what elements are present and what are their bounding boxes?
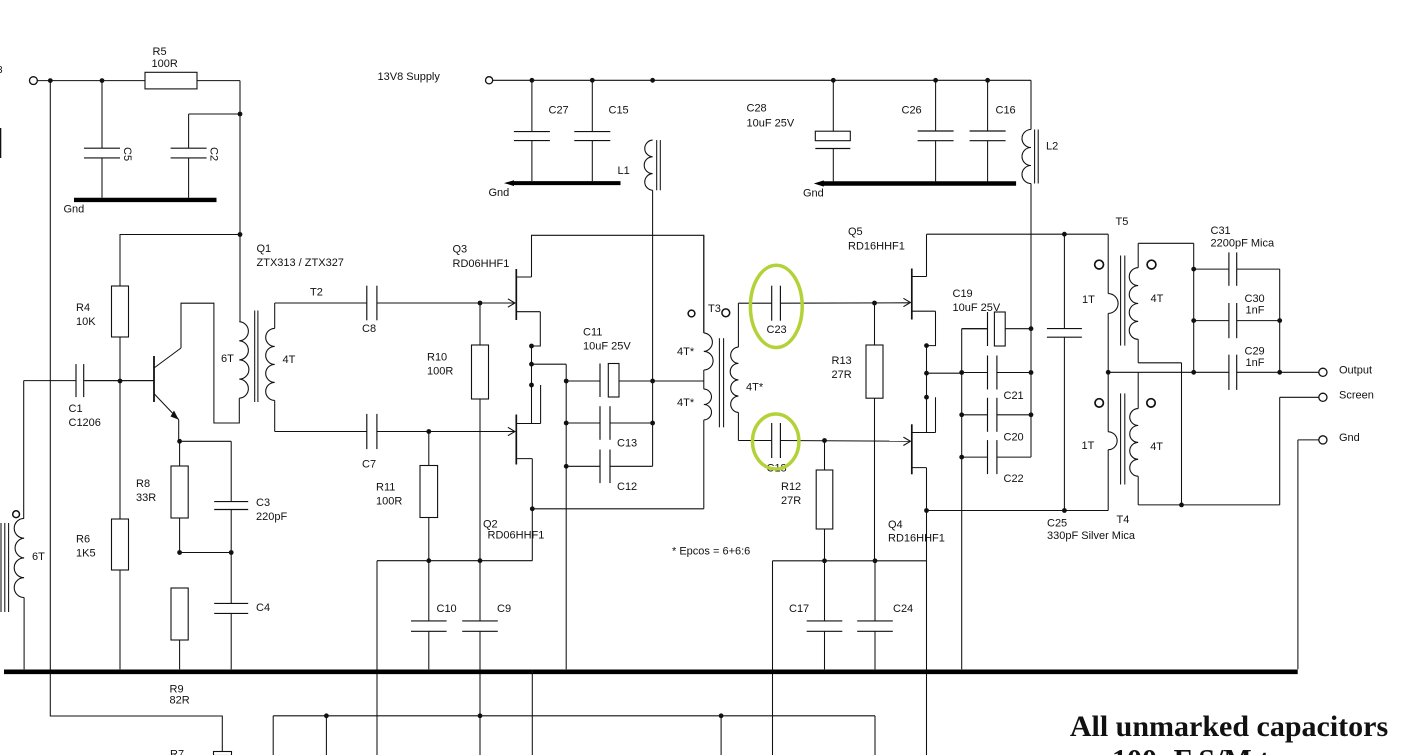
- svg-text:R7: R7: [170, 749, 184, 755]
- svg-text:Gnd: Gnd: [64, 204, 85, 216]
- svg-text:4T: 4T: [283, 354, 296, 366]
- svg-text:Gnd: Gnd: [803, 188, 824, 200]
- svg-text:* Epcos = 6+6:6: * Epcos = 6+6:6: [672, 546, 750, 558]
- svg-text:Output: Output: [1339, 364, 1372, 376]
- svg-text:27R: 27R: [781, 495, 801, 507]
- svg-text:R12: R12: [781, 481, 801, 493]
- svg-text:R8: R8: [136, 478, 150, 490]
- svg-text:C28: C28: [747, 103, 767, 115]
- svg-text:C22: C22: [1004, 473, 1024, 485]
- svg-text:C15: C15: [609, 105, 629, 117]
- svg-text:ZTX313 / ZTX327: ZTX313 / ZTX327: [257, 257, 344, 269]
- svg-text:R11: R11: [376, 482, 395, 494]
- svg-text:C2: C2: [208, 147, 220, 161]
- svg-text:4T*: 4T*: [677, 397, 695, 409]
- svg-text:C25: C25: [1047, 518, 1067, 530]
- svg-text:10uF 25V: 10uF 25V: [953, 302, 1001, 314]
- svg-text:R4: R4: [76, 302, 90, 314]
- svg-text:220pF: 220pF: [256, 511, 287, 523]
- svg-text:100R: 100R: [152, 58, 178, 70]
- svg-text:1T: 1T: [1082, 294, 1095, 306]
- svg-text:T3: T3: [708, 303, 721, 315]
- svg-text:C20: C20: [1004, 432, 1024, 444]
- svg-text:C26: C26: [902, 105, 922, 117]
- svg-text:6T: 6T: [221, 353, 234, 365]
- svg-text:100R: 100R: [427, 366, 453, 378]
- svg-text:Gnd: Gnd: [489, 187, 510, 199]
- svg-text:Screen: Screen: [1339, 389, 1374, 401]
- svg-text:All unmarked capacitors: All unmarked capacitors: [1070, 710, 1388, 743]
- svg-text:Q4: Q4: [888, 519, 903, 531]
- svg-text:10uF 25V: 10uF 25V: [747, 118, 795, 130]
- svg-text:C11: C11: [583, 327, 602, 339]
- svg-text:4T: 4T: [1151, 293, 1164, 305]
- svg-text:2200pF Mica: 2200pF Mica: [1211, 238, 1275, 250]
- svg-text:C27: C27: [549, 105, 569, 117]
- svg-text:330pF Silver Mica: 330pF Silver Mica: [1047, 530, 1136, 542]
- svg-text:6T: 6T: [32, 551, 45, 563]
- svg-text:C16: C16: [996, 105, 1016, 117]
- svg-text:C4: C4: [256, 602, 270, 614]
- svg-text:3: 3: [0, 65, 3, 76]
- svg-text:RD06HHF1: RD06HHF1: [453, 258, 510, 270]
- svg-text:Q3: Q3: [453, 244, 468, 256]
- svg-text:C1206: C1206: [69, 417, 101, 429]
- svg-text:T4: T4: [1117, 514, 1130, 526]
- svg-text:1K5: 1K5: [76, 548, 96, 560]
- svg-text:Gnd: Gnd: [1339, 432, 1360, 444]
- svg-text:RD06HHF1: RD06HHF1: [488, 530, 545, 542]
- svg-text:C5: C5: [121, 147, 133, 161]
- svg-text:27R: 27R: [832, 369, 852, 381]
- svg-text:C29: C29: [1245, 346, 1265, 358]
- svg-text:C21: C21: [1004, 390, 1024, 402]
- svg-text:4T: 4T: [1150, 441, 1163, 453]
- svg-text:4T*: 4T*: [746, 382, 764, 394]
- svg-text:33R: 33R: [136, 492, 156, 504]
- svg-text:Q5: Q5: [848, 226, 863, 238]
- svg-text:Q1: Q1: [257, 243, 272, 255]
- svg-text:R5: R5: [153, 46, 167, 58]
- svg-text:1nF: 1nF: [1246, 357, 1265, 369]
- svg-text:T2: T2: [310, 287, 323, 299]
- svg-text:1T: 1T: [1082, 440, 1095, 452]
- svg-text:C13: C13: [617, 438, 637, 450]
- svg-text:T5: T5: [1116, 216, 1129, 228]
- svg-text:4T*: 4T*: [677, 346, 695, 358]
- svg-text:R10: R10: [427, 352, 447, 364]
- svg-text:82R: 82R: [170, 694, 190, 706]
- svg-text:100pF S/M type: 100pF S/M type: [1112, 744, 1314, 755]
- svg-text:C1: C1: [69, 403, 83, 415]
- svg-text:10K: 10K: [76, 316, 96, 328]
- svg-text:C8: C8: [362, 323, 376, 335]
- svg-text:RD16HHF1: RD16HHF1: [888, 533, 945, 545]
- svg-text:R6: R6: [76, 534, 90, 546]
- svg-text:L2: L2: [1046, 141, 1058, 153]
- svg-text:RD16HHF1: RD16HHF1: [848, 241, 905, 253]
- svg-text:C24: C24: [893, 603, 913, 615]
- svg-text:C17: C17: [789, 603, 809, 615]
- svg-text:100R: 100R: [376, 496, 402, 508]
- svg-text:C23: C23: [767, 324, 787, 336]
- svg-text:R13: R13: [832, 355, 852, 367]
- svg-text:C12: C12: [617, 481, 637, 493]
- svg-text:13V8 Supply: 13V8 Supply: [378, 71, 441, 83]
- svg-text:C31: C31: [1211, 225, 1231, 237]
- svg-text:L1: L1: [618, 165, 630, 177]
- svg-text:C7: C7: [362, 459, 376, 471]
- svg-text:C3: C3: [256, 497, 270, 509]
- svg-text:C19: C19: [953, 288, 973, 300]
- svg-text:C10: C10: [437, 603, 457, 615]
- svg-text:10uF 25V: 10uF 25V: [583, 341, 631, 353]
- svg-text:C9: C9: [497, 603, 511, 615]
- svg-text:1nF: 1nF: [1246, 305, 1265, 317]
- svg-text:C30: C30: [1245, 293, 1265, 305]
